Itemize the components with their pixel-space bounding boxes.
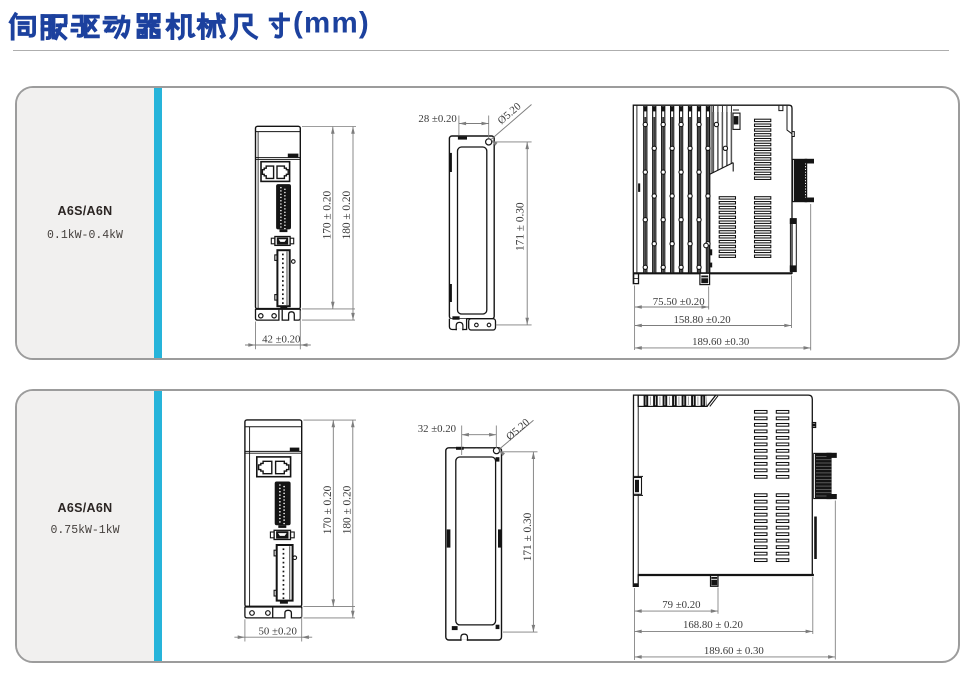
svg-text:171 ± 0.30: 171 ± 0.30 <box>514 202 526 251</box>
svg-text:28 ±0.20: 28 ±0.20 <box>418 113 456 125</box>
svg-text:180 ± 0.20: 180 ± 0.20 <box>342 485 354 534</box>
svg-text:Ø5.20: Ø5.20 <box>504 416 532 443</box>
svg-text:50 ±0.20: 50 ±0.20 <box>259 625 297 637</box>
svg-text:75.50 ±0.20: 75.50 ±0.20 <box>653 296 705 308</box>
svg-text:32 ±0.20: 32 ±0.20 <box>418 423 456 435</box>
svg-text:180 ± 0.20: 180 ± 0.20 <box>341 190 353 239</box>
svg-text:189.60 ± 0.30: 189.60 ± 0.30 <box>704 645 764 657</box>
svg-text:158.80 ±0.20: 158.80 ±0.20 <box>673 314 730 326</box>
svg-text:79 ±0.20: 79 ±0.20 <box>662 599 700 611</box>
svg-text:189.60 ±0.30: 189.60 ±0.30 <box>692 336 749 348</box>
svg-text:170 ± 0.20: 170 ± 0.20 <box>321 190 333 239</box>
svg-text:168.80 ± 0.20: 168.80 ± 0.20 <box>683 619 743 631</box>
svg-text:42 ±0.20: 42 ±0.20 <box>262 334 300 346</box>
svg-text:171 ± 0.30: 171 ± 0.30 <box>522 512 534 561</box>
svg-text:170 ± 0.20: 170 ± 0.20 <box>322 485 334 534</box>
